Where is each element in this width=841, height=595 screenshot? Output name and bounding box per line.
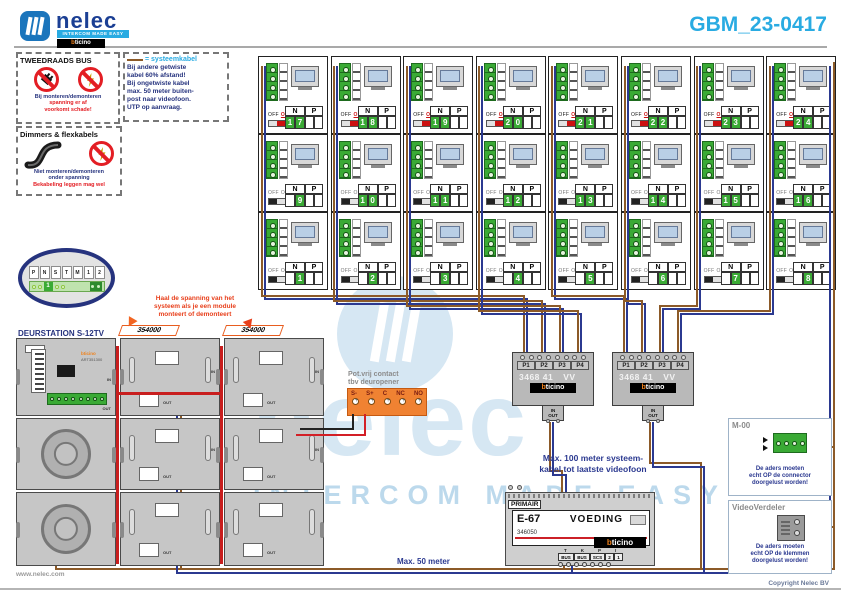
wire <box>577 310 579 353</box>
videophone-unit: OFFON NP 2 1 <box>548 56 618 134</box>
terminator-switch <box>341 120 359 127</box>
address-digit: 3 <box>585 194 595 207</box>
unit-terminal-block <box>266 219 278 257</box>
videophone-unit: OFFON NP 6 <box>621 212 691 290</box>
wire <box>333 300 543 302</box>
wire <box>699 66 701 308</box>
address-digit <box>285 194 295 207</box>
videophone-icon <box>436 66 464 87</box>
document-title: GBM_23-0417 <box>689 13 827 37</box>
wire <box>565 474 567 492</box>
flex-cable-icon <box>22 139 82 169</box>
videophone-unit: OFFON NP 5 <box>548 212 618 290</box>
videophone-unit: OFFON NP 2 2 <box>621 56 691 134</box>
wire <box>627 66 629 303</box>
unit-terminal-block <box>629 141 641 179</box>
videophone-icon <box>436 144 464 165</box>
terminator-switch <box>558 198 576 205</box>
flex-cable-art <box>20 139 118 169</box>
unit-terminal-labels <box>787 141 796 179</box>
videophone-unit: OFFON NP 1 8 <box>331 56 401 134</box>
address-digit: 0 <box>368 194 378 207</box>
unit-terminal-labels <box>352 219 361 257</box>
video-splitter-device <box>777 515 805 541</box>
wire <box>680 313 774 315</box>
videophone-icon <box>291 66 319 87</box>
address-digit: 1 <box>440 194 450 207</box>
address-digit: 7 <box>731 272 741 285</box>
videophone-unit: OFFON NP 4 <box>476 212 546 290</box>
unit-terminal-labels <box>715 219 724 257</box>
videophone-icon <box>654 144 682 165</box>
unit-terminal-block <box>556 219 568 257</box>
unit-terminal-block <box>411 141 423 179</box>
terminator-switch <box>558 276 576 283</box>
address-digit: 4 <box>513 272 523 285</box>
address-digit: 2 <box>721 116 731 129</box>
note-systeemkabel: = systeemkabel Bij andere getwiste kabel… <box>123 52 229 122</box>
unit-terminal-labels <box>279 63 288 101</box>
address-digit: 2 <box>648 116 658 129</box>
address-digit: 1 <box>721 194 731 207</box>
videophone-unit: OFFON NP 1 4 <box>621 134 691 212</box>
unit-terminal-labels <box>424 219 433 257</box>
module-ribbon: 354000 <box>118 325 180 336</box>
address-digit: 2 <box>658 116 668 129</box>
terminator-switch <box>776 120 794 127</box>
address-digit: 1 <box>430 116 440 129</box>
unit-terminal-block <box>411 219 423 257</box>
max-50m-note: Max. 50 meter <box>397 557 450 566</box>
no-voltage-icon <box>89 141 114 166</box>
terminator-switch <box>704 120 722 127</box>
bticino-logo: bticino <box>57 39 105 48</box>
unit-terminal-block <box>484 219 496 257</box>
wire <box>296 434 366 436</box>
power-supply: PRIMAIR E-67 VOEDING 346050 bticino TKPI… <box>505 492 655 566</box>
unit-terminal-labels <box>787 219 796 257</box>
videophone-icon <box>727 144 755 165</box>
unit-terminal-labels <box>569 141 578 179</box>
np-address-table: NP 1 6 <box>793 184 831 207</box>
unit-terminal-labels <box>279 219 288 257</box>
address-digit: 8 <box>368 116 378 129</box>
wire <box>641 300 643 353</box>
terminator-switch <box>704 276 722 283</box>
videophone-unit: OFFON NP 7 <box>694 212 764 290</box>
brand-tagline: INTERCOM MADE EASY <box>57 30 129 38</box>
unit-terminal-block <box>411 63 423 101</box>
terminator-switch <box>631 198 649 205</box>
videophone-icon <box>509 144 537 165</box>
wire <box>406 305 561 307</box>
np-address-table: NP 2 1 <box>575 106 613 129</box>
psu-voeding-label: VOEDING <box>570 514 623 525</box>
address-digit: 2 <box>503 116 513 129</box>
videophone-icon <box>799 222 827 243</box>
unit-terminal-block <box>484 63 496 101</box>
unit-terminal-labels <box>642 63 651 101</box>
np-address-table: NP 2 0 <box>503 106 541 129</box>
configurator-number: 1 <box>44 282 53 291</box>
psu-terminals: BUS BUS SCS 2 1 <box>558 553 623 561</box>
wire <box>624 66 626 300</box>
videophone-icon <box>581 222 609 243</box>
np-address-table: NP 1 9 <box>430 106 468 129</box>
unit-terminal-block <box>774 219 786 257</box>
wire <box>554 66 556 298</box>
address-digit: 1 <box>575 194 585 207</box>
distributor-inout: INOUT <box>542 405 564 421</box>
wire <box>677 310 679 353</box>
wire <box>300 428 354 430</box>
address-digit: 2 <box>575 116 585 129</box>
address-digit: 0 <box>513 116 523 129</box>
videophone-unit: OFFON NP 8 <box>766 212 836 290</box>
videophone-unit: OFFON NP 2 3 <box>694 56 764 134</box>
wire-arrows <box>763 435 768 453</box>
address-digit: 1 <box>503 194 513 207</box>
np-address-table: NP 9 <box>285 184 323 207</box>
button-frame-module: IN OUT <box>120 418 220 490</box>
m00-note-box: M-00 De aders moetenecht OP de connector… <box>728 418 832 496</box>
wire <box>677 310 771 312</box>
videophone-unit: OFFON NP 2 0 <box>476 56 546 134</box>
note-tweedraads-bus: TWEEDRAADS BUS Bij monteren/demonteren s… <box>16 52 120 124</box>
wire <box>481 313 582 315</box>
wire <box>772 66 774 313</box>
wire <box>769 66 771 310</box>
videophone-icon <box>364 222 392 243</box>
unit-terminal-labels <box>424 63 433 101</box>
unit-terminal-labels <box>715 141 724 179</box>
wire <box>626 298 628 353</box>
wire <box>406 66 408 305</box>
wire <box>364 414 366 436</box>
wire <box>551 295 625 297</box>
wire <box>116 346 119 564</box>
unit-terminal-labels <box>569 63 578 101</box>
address-digit: 1 <box>585 116 595 129</box>
address-digit: 6 <box>658 272 668 285</box>
address-digit: 4 <box>803 116 813 129</box>
address-digit: 1 <box>358 116 368 129</box>
bticino-logo: bticino <box>530 383 576 393</box>
address-digit: 1 <box>358 194 368 207</box>
power-warning-text: Haal de spanning van het systeem als je … <box>132 295 258 318</box>
wire <box>478 66 480 310</box>
videophone-icon <box>799 66 827 87</box>
videophone-icon <box>364 144 392 165</box>
videophone-unit: OFFON NP 2 <box>331 212 401 290</box>
terminator-switch <box>776 276 794 283</box>
wire <box>644 303 646 353</box>
videophone-unit: OFFON NP 2 4 <box>766 56 836 134</box>
address-digit: 2 <box>368 272 378 285</box>
videophone-icon <box>291 144 319 165</box>
note-flexkabels: Dimmers & flexkabels Niet monteren/demon… <box>16 126 122 196</box>
distributor-inout: INOUT <box>642 405 664 421</box>
bticino-logo: bticino <box>630 383 676 393</box>
deurstation-speaker-module <box>16 492 116 566</box>
address-digit: 1 <box>648 194 658 207</box>
wire <box>118 392 222 395</box>
unit-terminal-block <box>702 63 714 101</box>
np-address-table: NP 2 <box>358 262 396 285</box>
primair-label: PRIMAIR <box>508 500 541 509</box>
videophone-icon <box>291 222 319 243</box>
psu-mini-box <box>630 515 646 525</box>
address-digit: 3 <box>440 272 450 285</box>
address-digit: 3 <box>731 116 741 129</box>
np-address-table: NP 1 3 <box>575 184 613 207</box>
address-digit: 2 <box>513 194 523 207</box>
door-terminal-strip <box>47 393 107 405</box>
wire <box>659 305 698 307</box>
unit-terminal-block <box>266 141 278 179</box>
unit-terminal-block <box>702 219 714 257</box>
address-digit <box>721 272 731 285</box>
wire <box>703 466 705 572</box>
address-digit <box>430 272 440 285</box>
unit-terminal-block <box>266 63 278 101</box>
videophone-unit: OFFON NP 1 6 <box>766 134 836 212</box>
psu-model: E-67 <box>517 513 540 525</box>
np-address-table: NP 1 4 <box>648 184 686 207</box>
videophone-unit: OFFON NP 9 <box>258 134 328 212</box>
np-address-table: NP 1 5 <box>721 184 759 207</box>
unit-terminal-block <box>629 63 641 101</box>
unit-terminal-block <box>702 141 714 179</box>
terminator-switch <box>486 198 504 205</box>
np-address-table: NP 1 7 <box>285 106 323 129</box>
videophone-icon <box>654 66 682 87</box>
button-frame-module: OUT <box>120 492 220 566</box>
videophone-unit: OFFON NP 1 9 <box>403 56 473 134</box>
wire <box>220 346 223 564</box>
watermark-tagline: INTERCOM MADE EASY <box>253 480 727 511</box>
no-plug-icon <box>34 67 59 92</box>
unit-terminal-block <box>339 141 351 179</box>
address-digit: 1 <box>793 194 803 207</box>
address-digit: 5 <box>731 194 741 207</box>
diagram-page: nelec INTERCOM MADE EASY nelec INTERCOM … <box>0 0 841 595</box>
videophone-icon <box>727 66 755 87</box>
unit-terminal-labels <box>424 141 433 179</box>
np-address-table: NP 1 <box>285 262 323 285</box>
address-digit <box>503 272 513 285</box>
videophone-unit: OFFON NP 1 <box>258 212 328 290</box>
website-url: www.nelec.com <box>16 571 65 578</box>
copyright-text: Copyright Nelec BV <box>768 580 829 587</box>
wire <box>833 62 835 570</box>
cable-swatch <box>127 59 143 61</box>
no-voltage-icon <box>78 67 103 92</box>
address-digit: 6 <box>803 194 813 207</box>
address-digit: 9 <box>440 116 450 129</box>
terminator-switch <box>413 120 431 127</box>
videophone-unit: OFFON NP 1 1 <box>403 134 473 212</box>
floor-distributor: P1 P2 P3 P4 3468 41VV bticino INOUT <box>512 352 594 406</box>
wire <box>580 313 582 353</box>
unit-terminal-labels <box>787 63 796 101</box>
videophone-icon <box>509 66 537 87</box>
np-address-table: NP 8 <box>793 262 831 285</box>
terminator-switch <box>341 276 359 283</box>
potvrij-caption: Pot.vrij contact tbv deuropener <box>348 371 399 387</box>
videophone-icon <box>727 222 755 243</box>
configurator-end-block <box>90 282 102 291</box>
videophone-icon <box>799 144 827 165</box>
unit-terminal-block <box>556 63 568 101</box>
wire <box>264 66 266 298</box>
videophone-unit: OFFON NP 1 7 <box>258 56 328 134</box>
unit-terminal-block <box>556 141 568 179</box>
psu-top-screws <box>508 485 522 490</box>
deurstation-av-module: bticino ART351300 IN OUT <box>16 338 116 416</box>
videophone-unit: OFFON NP 1 2 <box>476 134 546 212</box>
wire <box>261 295 526 297</box>
address-digit: 1 <box>430 194 440 207</box>
videophone-unit: OFFON NP 1 0 <box>331 134 401 212</box>
unit-terminal-labels <box>569 219 578 257</box>
wire <box>659 305 661 353</box>
pin-connector <box>31 349 46 393</box>
button-frame-module: OUT <box>224 492 324 566</box>
np-address-table: NP 1 0 <box>358 184 396 207</box>
wire <box>261 66 263 295</box>
terminator-switch <box>776 198 794 205</box>
address-digit <box>793 272 803 285</box>
wire <box>478 310 579 312</box>
np-address-table: NP 4 <box>503 262 541 285</box>
floor-distributor: P1 P2 P3 P4 3468 41VV bticino INOUT <box>612 352 694 406</box>
np-address-table: NP 7 <box>721 262 759 285</box>
wire <box>55 568 835 570</box>
address-digit: 5 <box>585 272 595 285</box>
unit-terminal-block <box>629 219 641 257</box>
address-digit <box>575 272 585 285</box>
psu-article-number: 346050 <box>517 530 537 536</box>
wire <box>680 313 682 353</box>
unit-terminal-labels <box>715 63 724 101</box>
videophone-icon <box>436 222 464 243</box>
videoverdeler-note-box: VideoVerdeler De aders moetenecht OP de … <box>728 500 832 574</box>
dip-block <box>57 365 75 377</box>
videophone-icon <box>364 66 392 87</box>
address-digit: 7 <box>295 116 305 129</box>
bticino-logo: bticino <box>594 537 646 548</box>
np-address-table: NP 3 <box>430 262 468 285</box>
potvrij-contact-box: S- S+ C NC NO <box>347 388 427 416</box>
address-digit <box>358 272 368 285</box>
terminator-switch <box>268 198 286 205</box>
terminator-switch <box>268 276 286 283</box>
wire <box>623 295 625 353</box>
unit-terminal-block <box>774 63 786 101</box>
green-connector <box>773 433 807 453</box>
unit-terminal-labels <box>279 141 288 179</box>
terminator-switch <box>486 276 504 283</box>
wire <box>700 462 702 568</box>
videophone-icon <box>581 66 609 87</box>
address-digit <box>648 272 658 285</box>
unit-terminal-labels <box>642 219 651 257</box>
unit-terminal-block <box>774 141 786 179</box>
unit-terminal-labels <box>352 141 361 179</box>
videophone-icon <box>654 222 682 243</box>
videophone-icon <box>581 144 609 165</box>
terminator-switch <box>413 276 431 283</box>
configurator-strip: 1 <box>29 281 105 292</box>
address-digit: 4 <box>658 194 668 207</box>
videophone-unit: OFFON NP 3 <box>403 212 473 290</box>
np-address-table: NP 1 8 <box>358 106 396 129</box>
videophone-unit: OFFON NP 1 5 <box>694 134 764 212</box>
np-address-table: NP 1 1 <box>430 184 468 207</box>
address-digit: 2 <box>793 116 803 129</box>
wire <box>409 66 411 308</box>
terminator-switch <box>413 198 431 205</box>
terminator-switch <box>341 198 359 205</box>
wire <box>336 66 338 303</box>
videophone-icon <box>509 222 537 243</box>
address-digit <box>285 272 295 285</box>
footer-rule <box>0 588 841 590</box>
address-digit: 1 <box>295 272 305 285</box>
nelec-logo-icon <box>20 11 50 41</box>
unit-terminal-labels <box>352 63 361 101</box>
button-frame-module: IN OUT <box>120 338 220 416</box>
deurstation-title: DEURSTATION S-12TV <box>18 329 104 338</box>
wire <box>554 298 628 300</box>
unit-terminal-labels <box>642 141 651 179</box>
unit-terminal-labels <box>497 141 506 179</box>
unit-terminal-block <box>339 219 351 257</box>
wire <box>333 66 335 300</box>
np-address-table: NP 2 4 <box>793 106 831 129</box>
terminator-switch <box>704 198 722 205</box>
max-100m-note: Max. 100 meter systeem- kabel tot laatst… <box>518 453 668 474</box>
np-address-table: NP 5 <box>575 262 613 285</box>
terminator-switch <box>486 120 504 127</box>
address-digit: 8 <box>803 272 813 285</box>
wire <box>662 308 664 353</box>
header-rule <box>14 46 827 48</box>
wire <box>551 66 553 295</box>
address-digit: 9 <box>295 194 305 207</box>
unit-terminal-block <box>484 141 496 179</box>
terminator-switch <box>631 276 649 283</box>
unit-terminal-labels <box>497 63 506 101</box>
terminator-switch <box>268 120 286 127</box>
terminator-switch <box>558 120 576 127</box>
unit-terminal-block <box>339 63 351 101</box>
videophone-unit: OFFON NP 1 3 <box>548 134 618 212</box>
np-address-table: NP 1 2 <box>503 184 541 207</box>
terminator-switch <box>631 120 649 127</box>
unit-terminal-labels <box>497 219 506 257</box>
wire <box>696 66 698 305</box>
np-address-table: NP 2 2 <box>648 106 686 129</box>
np-address-table: NP 2 3 <box>721 106 759 129</box>
wire <box>481 66 483 313</box>
button-frame-module: IN OUT <box>224 338 324 416</box>
address-digit: 1 <box>285 116 295 129</box>
connector-detail-bubble: P N S T M 1 2 1 <box>18 248 115 308</box>
np-address-table: NP 6 <box>648 262 686 285</box>
deurstation-speaker-module <box>16 418 116 490</box>
